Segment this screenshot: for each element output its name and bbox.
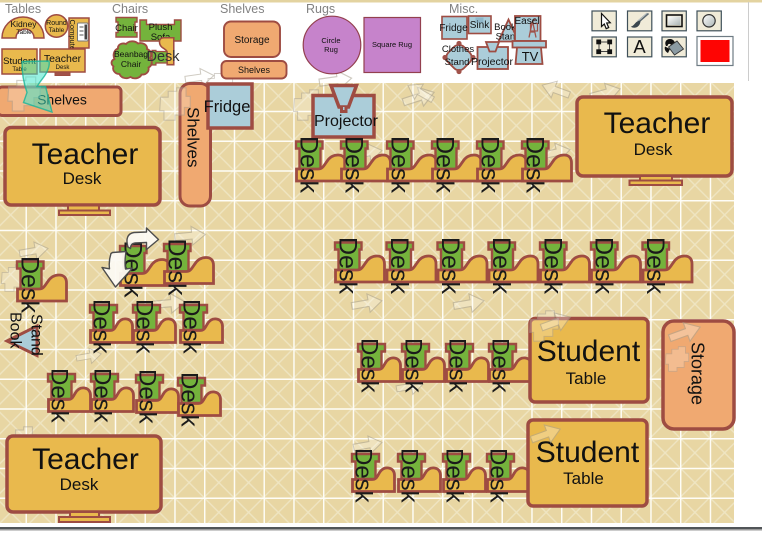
svg-text:Teacher: Teacher bbox=[604, 107, 711, 140]
svg-text:Desk: Desk bbox=[60, 475, 99, 494]
svg-text:Chair: Chair bbox=[121, 59, 141, 69]
svg-text:Table: Table bbox=[563, 469, 604, 488]
svg-text:Storage: Storage bbox=[234, 35, 269, 46]
svg-text:Rugs: Rugs bbox=[306, 2, 335, 16]
svg-text:Desk: Desk bbox=[146, 49, 180, 65]
svg-text:Shelves: Shelves bbox=[238, 65, 271, 75]
svg-text:Fridge: Fridge bbox=[204, 98, 251, 116]
svg-text:Easel: Easel bbox=[514, 16, 539, 27]
svg-text:Square Rug: Square Rug bbox=[372, 40, 412, 49]
svg-text:Projector: Projector bbox=[314, 113, 379, 130]
svg-text:Stand: Stand bbox=[445, 57, 470, 68]
svg-text:Table: Table bbox=[49, 27, 65, 34]
svg-text:Kidney: Kidney bbox=[11, 19, 38, 29]
svg-text:Sink: Sink bbox=[470, 20, 490, 31]
svg-text:TV: TV bbox=[522, 49, 539, 64]
svg-text:Projector: Projector bbox=[471, 56, 514, 68]
svg-text:Chair: Chair bbox=[115, 23, 138, 34]
svg-text:Shelves: Shelves bbox=[220, 2, 264, 16]
svg-text:Misc.: Misc. bbox=[449, 2, 478, 16]
svg-text:Desk: Desk bbox=[634, 140, 673, 159]
svg-text:Book: Book bbox=[7, 312, 24, 349]
svg-text:Desk: Desk bbox=[56, 65, 71, 71]
svg-text:Table: Table bbox=[566, 369, 607, 388]
svg-text:Student: Student bbox=[537, 335, 641, 368]
svg-text:Beanbag: Beanbag bbox=[114, 49, 148, 59]
svg-text:Rug: Rug bbox=[324, 45, 338, 54]
svg-text:Table: Table bbox=[16, 29, 32, 36]
svg-text:Teacher: Teacher bbox=[32, 138, 139, 171]
svg-text:Tables: Tables bbox=[5, 2, 41, 16]
svg-text:A: A bbox=[633, 36, 646, 57]
svg-text:Circle: Circle bbox=[321, 36, 340, 45]
svg-text:Storage: Storage bbox=[688, 342, 708, 405]
svg-text:Desk: Desk bbox=[63, 169, 102, 188]
svg-text:Teacher: Teacher bbox=[32, 443, 139, 476]
svg-text:Round: Round bbox=[46, 20, 67, 27]
svg-text:Chairs: Chairs bbox=[112, 2, 148, 16]
svg-text:Shelves: Shelves bbox=[184, 107, 203, 167]
svg-text:Fridge: Fridge bbox=[439, 23, 468, 34]
svg-text:Stand: Stand bbox=[28, 314, 45, 356]
svg-text:Clothes: Clothes bbox=[442, 44, 474, 55]
svg-text:Computer: Computer bbox=[68, 20, 77, 53]
